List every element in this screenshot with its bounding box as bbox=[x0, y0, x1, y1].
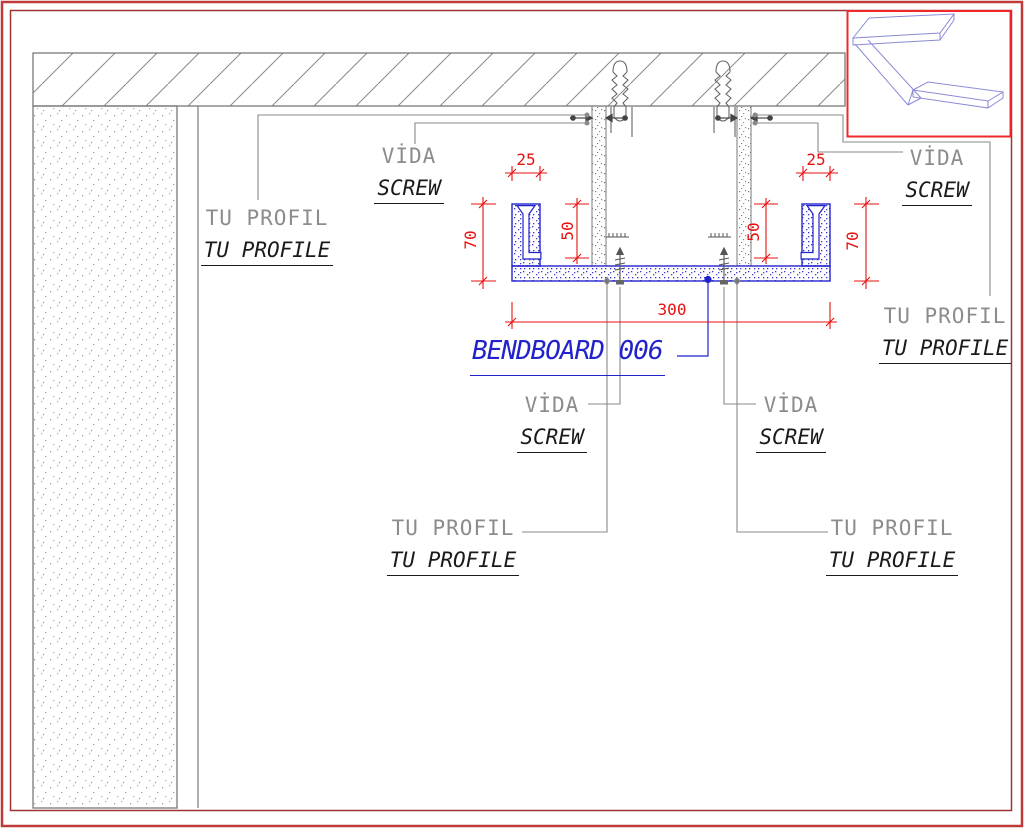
screw-label: SCREW bbox=[756, 425, 825, 453]
dim-25-left: 25 bbox=[504, 151, 548, 169]
tu-profile-label: TU PROFILE bbox=[879, 336, 1011, 364]
callout-tu-profile-top-left: TU PROFIL TU PROFILE bbox=[187, 202, 347, 268]
clip-combs bbox=[606, 233, 731, 237]
callout-screw-top-right: VİDA SCREW bbox=[857, 142, 1017, 208]
tu-profile-label: TU PROFILE bbox=[387, 548, 519, 576]
tu-profil-label: TU PROFIL bbox=[812, 512, 972, 545]
bendboard-label: BENDBOARD 006 bbox=[470, 336, 665, 376]
callout-screw-top-left: VİDA SCREW bbox=[329, 140, 489, 206]
tu-profil-label: TU PROFIL bbox=[187, 202, 347, 235]
vida-label: VİDA bbox=[472, 389, 632, 422]
screw-label: SCREW bbox=[902, 178, 971, 206]
tu-profil-label: TU PROFIL bbox=[373, 512, 533, 545]
vida-label: VİDA bbox=[857, 142, 1017, 175]
callout-screw-bottom-right: VİDA SCREW bbox=[711, 389, 871, 455]
tu-profile-label: TU PROFILE bbox=[201, 238, 333, 266]
tu-profil-label: TU PROFIL bbox=[865, 300, 1024, 333]
wall-section bbox=[33, 106, 177, 808]
screw-label: SCREW bbox=[517, 425, 586, 453]
dim-70-right: 70 bbox=[844, 219, 862, 263]
inset-3d-box bbox=[848, 11, 1011, 137]
screw-label: SCREW bbox=[374, 176, 443, 204]
vida-label: VİDA bbox=[711, 389, 871, 422]
callout-screw-bottom-left: VİDA SCREW bbox=[472, 389, 632, 455]
dim-300: 300 bbox=[650, 301, 694, 319]
dim-25-right: 25 bbox=[794, 151, 838, 169]
tu-profile-left-section bbox=[592, 106, 606, 266]
dim-70-left: 70 bbox=[462, 218, 480, 262]
dim-50-left: 50 bbox=[559, 209, 577, 253]
callout-tu-profile-right: TU PROFIL TU PROFILE bbox=[865, 300, 1024, 366]
tu-profile-label: TU PROFILE bbox=[826, 548, 958, 576]
vida-label: VİDA bbox=[329, 140, 489, 173]
callout-tu-profile-bottom-left: TU PROFIL TU PROFILE bbox=[373, 512, 533, 578]
callout-product: BENDBOARD 006 bbox=[470, 336, 665, 376]
dim-50-right: 50 bbox=[745, 210, 763, 254]
cad-drawing-sheet: TU PROFIL TU PROFILE VİDA SCREW VİDA SCR… bbox=[0, 0, 1024, 828]
callout-tu-profile-bottom-right: TU PROFIL TU PROFILE bbox=[812, 512, 972, 578]
